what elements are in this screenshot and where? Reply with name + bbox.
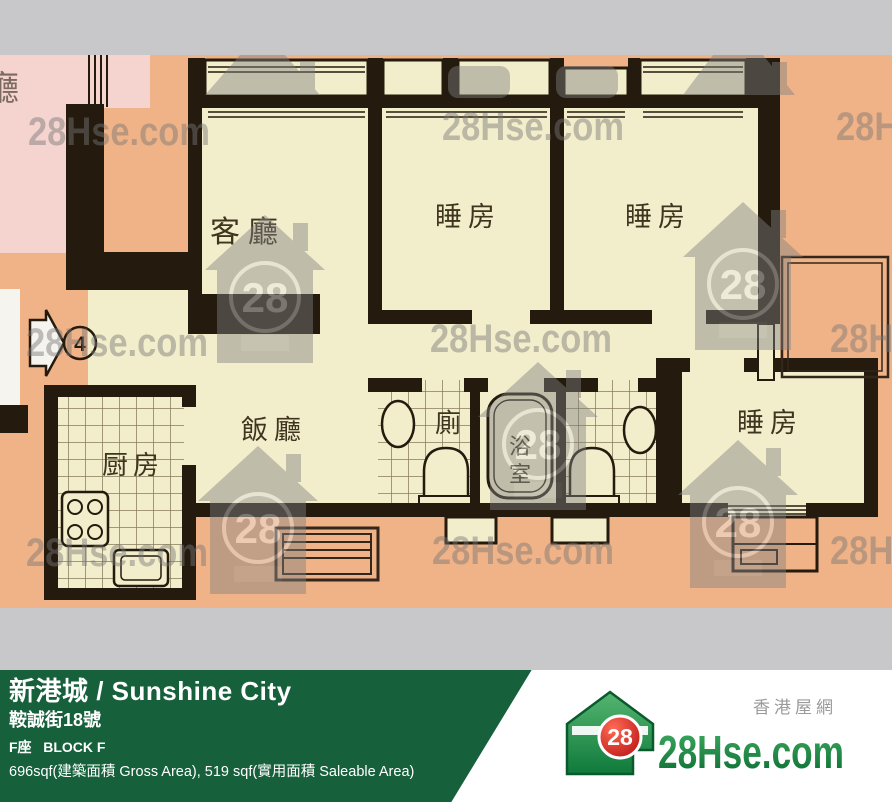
site-logo: 香港屋網 28 28Hse.com (540, 670, 892, 802)
screenshot-root: 4 客廳 睡房 睡房 睡房 飯廳 厨房 廁 浴 室 廳 28Hse.com 28… (0, 0, 892, 802)
area-info: 696sqf(建築面積 Gross Area), 519 sqf(實用面積 Sa… (9, 765, 414, 781)
toilet-label: 廁 (435, 408, 461, 438)
bottom-gray-strip (0, 608, 892, 670)
logo-house-icon: 28 (567, 692, 653, 774)
dining-room-label: 飯廳 (241, 415, 307, 445)
wall-stub (0, 405, 28, 433)
brand-text: 28Hse.com (658, 726, 844, 778)
watermark-text: 28Hse.com (836, 105, 892, 149)
kitchen-label: 厨房 (102, 450, 164, 480)
watermark-badge: 28 (715, 499, 762, 546)
watermark-badge: 28 (515, 421, 562, 468)
block-name: F座 BLOCK F (9, 740, 105, 755)
watermark-text: 28Hse.com (26, 531, 208, 575)
watermark-badge: 28 (235, 505, 282, 552)
estate-name: 新港城 / Sunshine City (9, 677, 292, 706)
adjacent-flat-label: 廳 (0, 70, 19, 108)
toilet-1 (419, 448, 473, 504)
washbasin-1 (382, 401, 414, 447)
watermark-text: 28Hse.com (432, 529, 614, 573)
bedroom3-label: 睡房 (737, 408, 803, 438)
site-name-cn: 香港屋網 (753, 698, 837, 717)
watermark-badge: 28 (242, 274, 289, 321)
watermark-text: 28Hse.com (442, 105, 624, 149)
washbasin-2 (624, 407, 656, 453)
watermark-badge: 28 (720, 261, 767, 308)
floor-plan: 4 客廳 睡房 睡房 睡房 飯廳 厨房 廁 浴 室 廳 28Hse.com 28… (0, 55, 892, 608)
watermark-text: 28Hse.com (830, 529, 892, 573)
watermark-text: 28Hse.com (26, 321, 208, 365)
watermark-text: 28Hse.com (430, 317, 612, 361)
watermark-text: 28Hse.com (830, 317, 892, 361)
estate-address: 鞍誠街18號 (9, 711, 101, 731)
logo-badge-number: 28 (607, 724, 633, 750)
footer-banner: 新港城 / Sunshine City 鞍誠街18號 F座 BLOCK F 69… (0, 670, 892, 802)
watermark-text: 28Hse.com (28, 110, 210, 154)
lobby-strip (0, 289, 20, 417)
bedroom2-label: 睡房 (625, 202, 691, 232)
bedroom1-label: 睡房 (435, 202, 501, 232)
top-gray-strip (0, 0, 892, 55)
